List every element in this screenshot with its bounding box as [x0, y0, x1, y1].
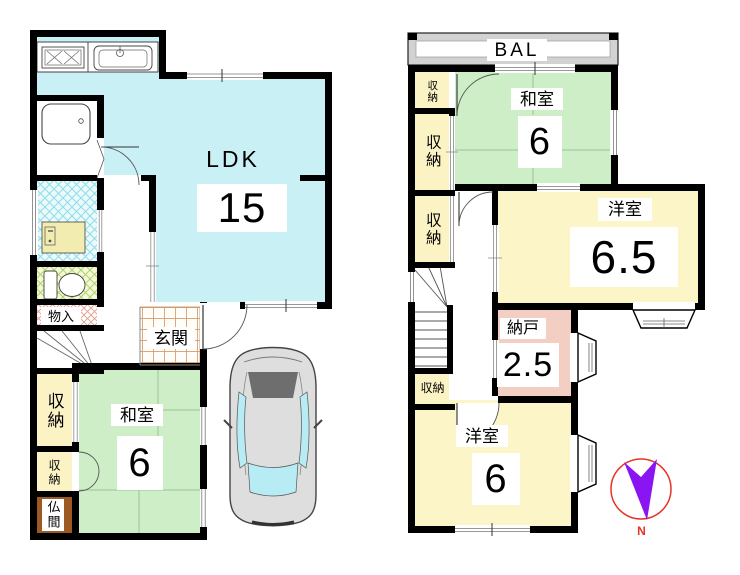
stairs-2f — [415, 266, 447, 366]
closet-upper-2f-label: 収納 — [419, 122, 445, 180]
kitchen-counter — [37, 42, 158, 72]
compass-icon — [611, 459, 671, 520]
yoshitsu-6-area: 6 — [472, 453, 520, 505]
vanity-icon — [42, 222, 85, 253]
ldk-area: 15 — [197, 184, 287, 232]
floorplan-canvas: LDK 15 玄関 和室 6 収納 収納 仏間 物入 BAL 和室 6 収納 収… — [0, 0, 740, 575]
closet-main-1f-label: 収納 — [38, 382, 70, 440]
yoshitsu-65-label: 洋室 — [598, 198, 652, 221]
monoire-label: 物入 — [41, 307, 81, 325]
closet-stairs-2f-label: 収納 — [416, 380, 449, 396]
ldk-label: LDK — [195, 146, 271, 172]
compass-north-label: N — [634, 524, 649, 538]
yoshitsu-6-label: 洋室 — [456, 425, 508, 447]
sink-icon — [94, 46, 152, 70]
butsuma-label: 仏間 — [42, 499, 64, 531]
balcony-label: BAL — [487, 39, 547, 61]
toilet-icon — [44, 271, 85, 299]
washitsu-2f-label: 和室 — [511, 88, 563, 110]
nando-area: 2.5 — [497, 343, 559, 387]
washitsu-1f-label: 和室 — [111, 404, 163, 426]
car-icon — [224, 348, 322, 526]
closet-mid-2f-label: 収納 — [419, 200, 445, 258]
floor1-plan — [29, 30, 332, 540]
bathtub-icon — [42, 104, 90, 144]
closet-sub-1f-label: 収納 — [43, 455, 65, 491]
washitsu-2f-area: 6 — [518, 116, 562, 168]
genkan-label: 玄関 — [147, 327, 195, 349]
yoshitsu-65-area: 6.5 — [570, 227, 678, 287]
closet-top-2f-label: 収納 — [421, 75, 443, 107]
nando-label: 納戸 — [500, 318, 546, 339]
washitsu-1f-area: 6 — [117, 436, 163, 490]
floorplan-drawing — [0, 0, 740, 575]
